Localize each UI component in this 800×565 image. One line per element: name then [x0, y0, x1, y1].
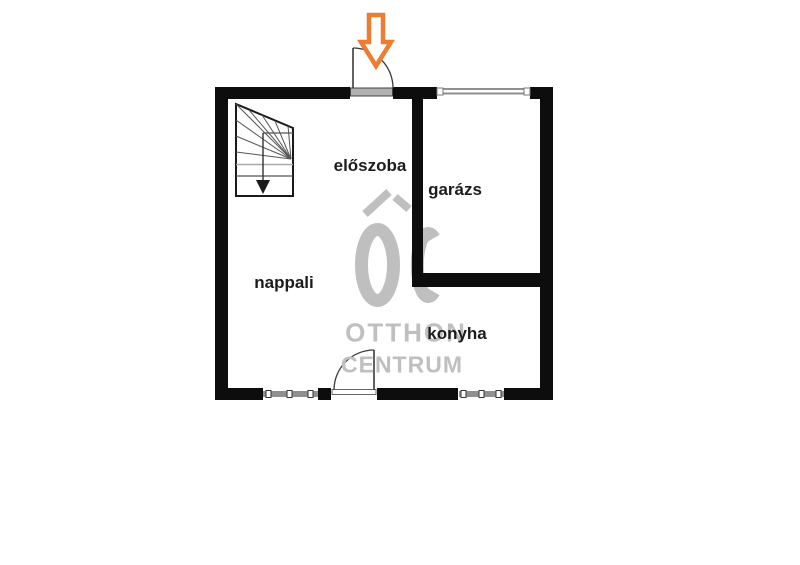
entrance-arrow-down-icon [361, 15, 391, 66]
floor-plan-drawing [0, 0, 800, 565]
window-icon [437, 88, 530, 95]
floor-plan-canvas: OTTHON CENTRUM [0, 0, 800, 565]
room-label-nappali: nappali [254, 273, 314, 293]
wall-bottom-seg3 [377, 388, 458, 400]
wall-right [540, 87, 553, 400]
room-label-konyha: konyha [427, 324, 487, 344]
wall-left [215, 87, 228, 400]
wall-garage-bottom [412, 273, 546, 287]
wall-garage-left [412, 87, 423, 287]
room-label-garazs: garázs [428, 180, 482, 200]
room-label-eloszoba: előszoba [334, 156, 407, 176]
bottom-door-threshold [332, 390, 376, 395]
wall-bottom-seg2 [318, 388, 331, 400]
watermark-text-line2: CENTRUM [341, 352, 463, 379]
window-icon [263, 391, 318, 398]
wall-top-left-segment [215, 87, 350, 99]
entrance-door-sill [351, 88, 393, 96]
wall-top-right-post [530, 87, 553, 99]
stair-direction-arrowhead [256, 180, 270, 194]
wall-bottom-seg1 [215, 388, 263, 400]
window-icon [459, 391, 504, 398]
wall-bottom-seg4 [504, 388, 553, 400]
staircase-icon [236, 104, 293, 196]
